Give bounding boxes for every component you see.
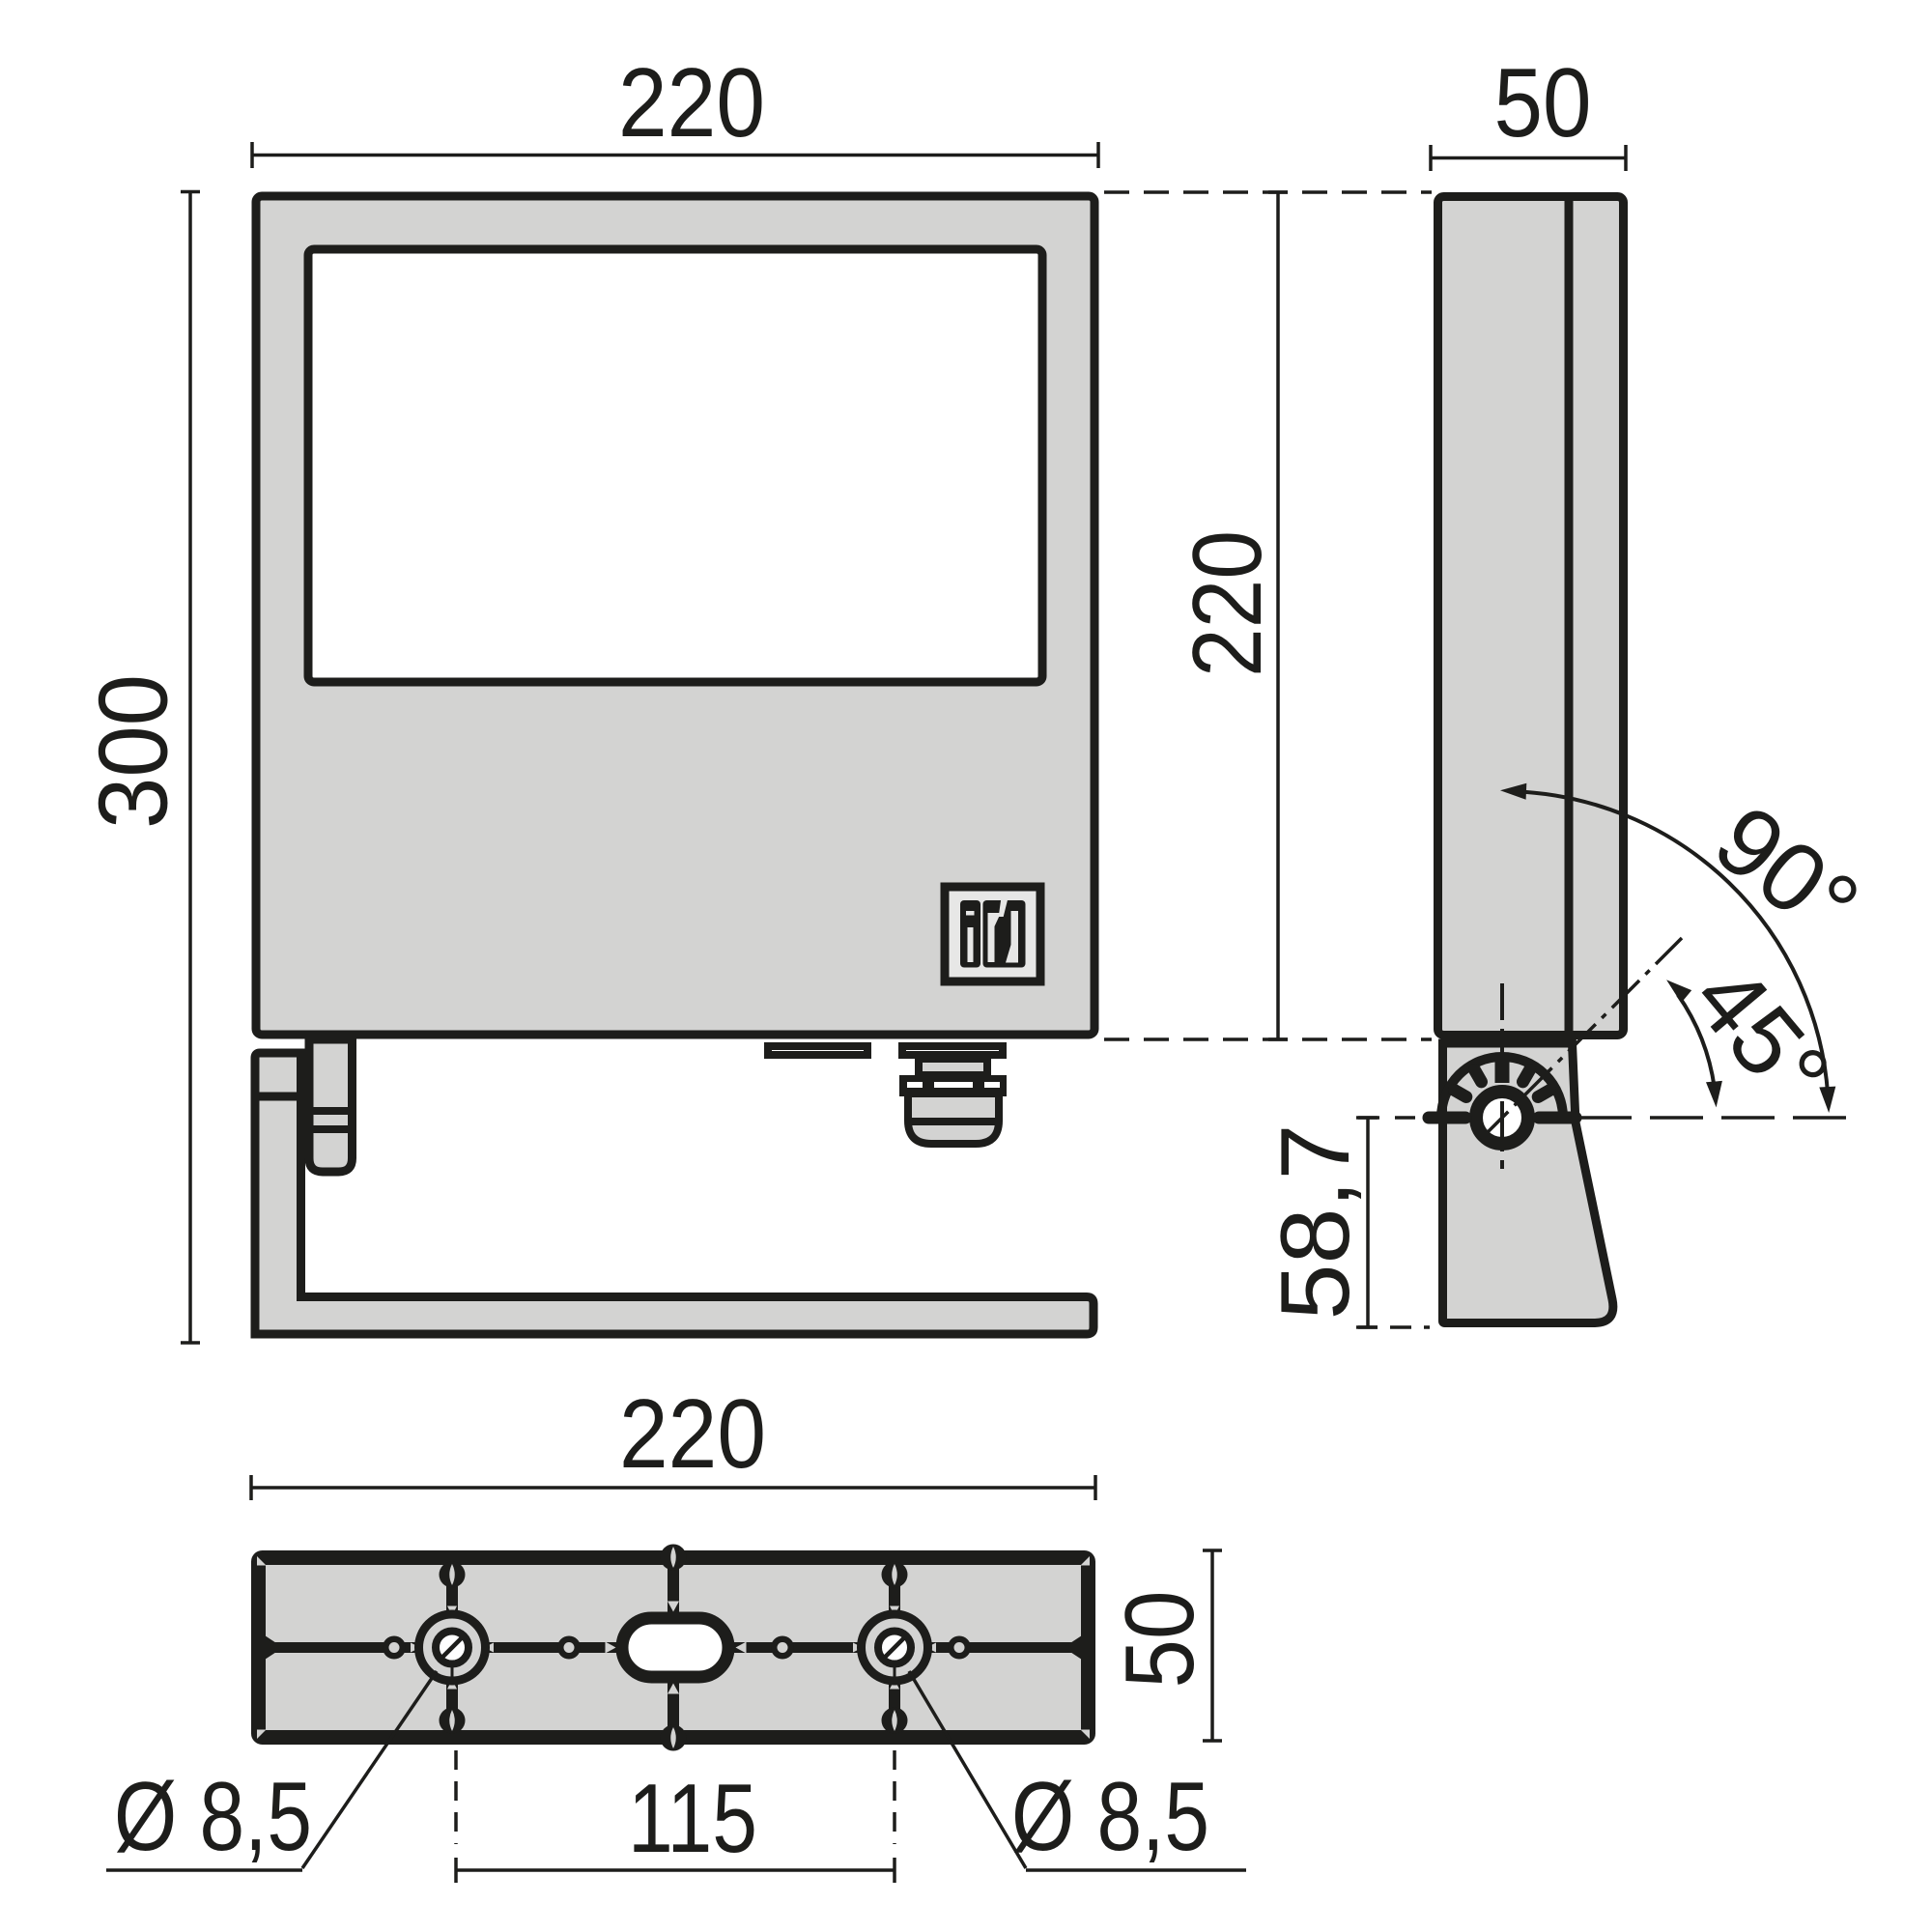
svg-text:220: 220	[619, 1380, 766, 1489]
svg-text:Ø 8,5: Ø 8,5	[114, 1763, 312, 1871]
svg-text:220: 220	[618, 49, 765, 157]
svg-text:Ø 8,5: Ø 8,5	[1011, 1763, 1209, 1871]
svg-text:50: 50	[1494, 49, 1592, 157]
svg-text:115: 115	[628, 1765, 757, 1873]
svg-text:58,7: 58,7	[1262, 1124, 1370, 1321]
svg-text:300: 300	[80, 674, 188, 829]
svg-text:50: 50	[1106, 1591, 1214, 1689]
svg-text:220: 220	[1174, 530, 1282, 677]
